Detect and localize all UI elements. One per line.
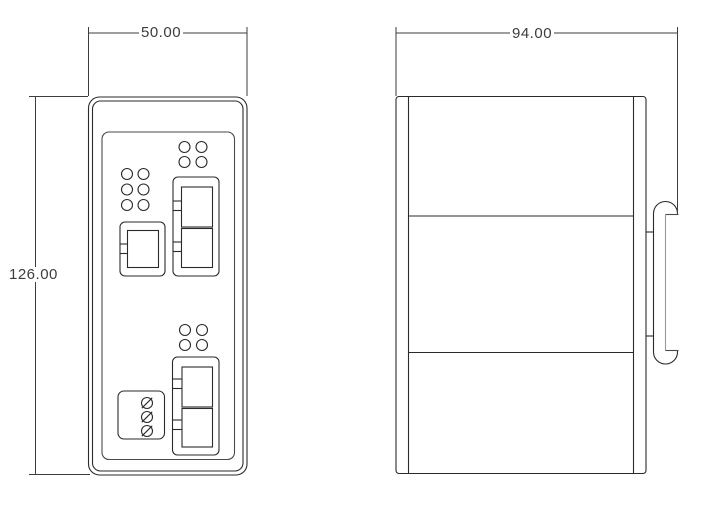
led-icon — [197, 325, 208, 336]
screw-terminal-icon — [142, 398, 153, 409]
led-grid-upper-right — [179, 142, 207, 168]
led-icon — [138, 184, 149, 195]
fiber-port-upper — [173, 177, 219, 276]
led-icon — [180, 340, 191, 351]
screw-terminal-icon — [142, 412, 153, 423]
fiber-port-slot — [182, 187, 213, 227]
front-view — [89, 97, 248, 475]
led-icon — [179, 157, 190, 168]
rj45-port — [120, 222, 165, 276]
front-width-dimension-label: 50.00 — [139, 25, 183, 40]
din-rail-clip — [646, 202, 680, 365]
side-body-outline — [396, 97, 646, 474]
led-grid-upper-left — [122, 169, 150, 211]
rj45-slot — [128, 231, 159, 268]
engineering-drawing: 50.00 94.00 126.00 — [0, 0, 703, 509]
led-grid-lower — [180, 325, 208, 351]
power-terminal-block — [118, 391, 165, 439]
led-icon — [122, 169, 133, 180]
led-icon — [179, 142, 190, 153]
led-icon — [196, 142, 207, 153]
drawing-linework — [0, 0, 703, 509]
led-icon — [138, 169, 149, 180]
dimension-front-height — [29, 97, 90, 475]
fiber-port-slot — [182, 409, 213, 448]
dimensions — [29, 27, 678, 475]
fiber-port-lower — [173, 357, 220, 455]
front-casing-outer — [89, 97, 248, 475]
led-icon — [122, 200, 133, 211]
fiber-port-slot — [182, 229, 213, 268]
led-icon — [180, 325, 191, 336]
fiber-port-slot — [182, 367, 213, 407]
led-icon — [138, 200, 149, 211]
front-height-dimension-label: 126.00 — [7, 267, 60, 282]
side-width-dimension-label: 94.00 — [510, 26, 554, 41]
screw-terminal-icon — [142, 426, 153, 437]
led-icon — [122, 184, 133, 195]
front-panel — [102, 132, 235, 460]
dimension-side-width — [396, 27, 678, 214]
led-icon — [196, 157, 207, 168]
led-icon — [197, 340, 208, 351]
front-casing-inner — [93, 101, 244, 471]
side-view — [396, 97, 680, 474]
